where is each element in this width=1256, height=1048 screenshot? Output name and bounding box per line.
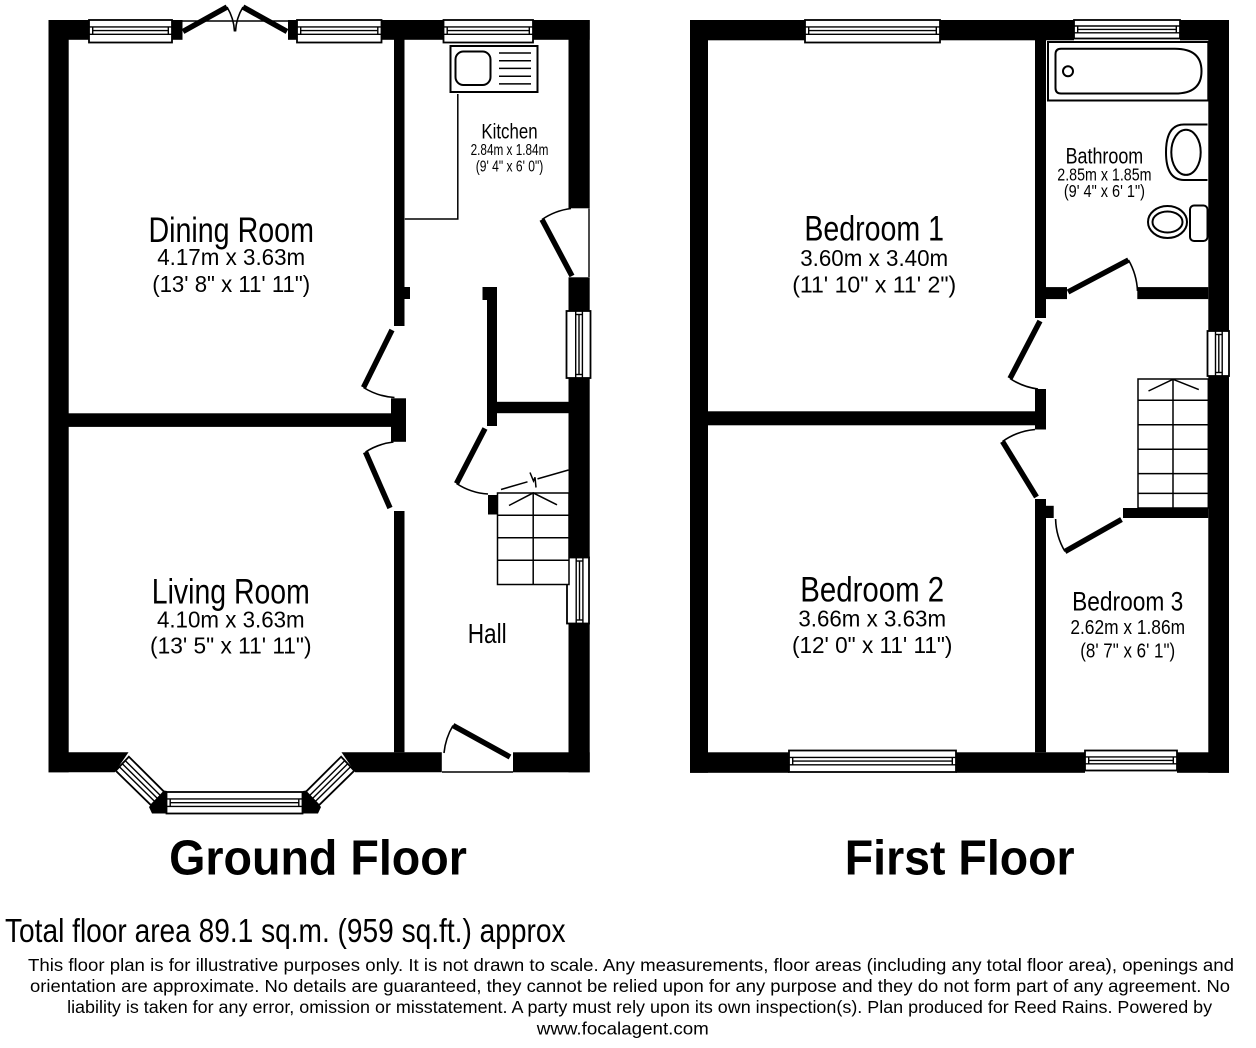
svg-text:Kitchen: Kitchen <box>481 121 537 144</box>
svg-text:(12' 0" x 11' 11"): (12' 0" x 11' 11") <box>792 632 953 658</box>
svg-text:(13' 8" x 11' 11"): (13' 8" x 11' 11") <box>152 271 310 297</box>
svg-text:Bedroom 1: Bedroom 1 <box>804 210 944 249</box>
svg-text:liability is taken for any err: liability is taken for any error, omissi… <box>67 997 1212 1017</box>
svg-text:(9' 4" x 6' 1"): (9' 4" x 6' 1") <box>1064 181 1145 201</box>
svg-text:Ground Floor: Ground Floor <box>169 832 467 886</box>
svg-text:Bedroom 2: Bedroom 2 <box>800 571 944 610</box>
svg-text:Total floor area 89.1 sq.m. (9: Total floor area 89.1 sq.m. (959 sq.ft.)… <box>5 912 566 949</box>
svg-text:Hall: Hall <box>468 618 507 649</box>
svg-text:orientation are approximate. N: orientation are approximate. No details … <box>30 976 1230 996</box>
svg-text:This floor plan is for illustr: This floor plan is for illustrative purp… <box>28 955 1234 975</box>
svg-text:3.60m x 3.40m: 3.60m x 3.40m <box>800 245 948 271</box>
svg-text:First Floor: First Floor <box>845 832 1075 886</box>
svg-text:(8' 7" x 6' 1"): (8' 7" x 6' 1") <box>1080 641 1175 663</box>
svg-text:2.84m x 1.84m: 2.84m x 1.84m <box>471 142 549 159</box>
svg-text:4.17m x 3.63m: 4.17m x 3.63m <box>157 244 305 270</box>
svg-text:Bedroom 3: Bedroom 3 <box>1072 587 1183 617</box>
svg-text:(11' 10" x 11' 2"): (11' 10" x 11' 2") <box>792 272 956 298</box>
svg-text:2.62m x 1.86m: 2.62m x 1.86m <box>1070 617 1185 639</box>
svg-text:4.10m x 3.63m: 4.10m x 3.63m <box>157 607 305 633</box>
svg-text:3.66m x 3.63m: 3.66m x 3.63m <box>798 606 946 632</box>
svg-text:(13' 5" x 11' 11"): (13' 5" x 11' 11") <box>150 633 312 659</box>
svg-text:(9' 4" x 6' 0"): (9' 4" x 6' 0") <box>476 159 544 176</box>
svg-text:www.focalagent.com: www.focalagent.com <box>536 1018 709 1038</box>
